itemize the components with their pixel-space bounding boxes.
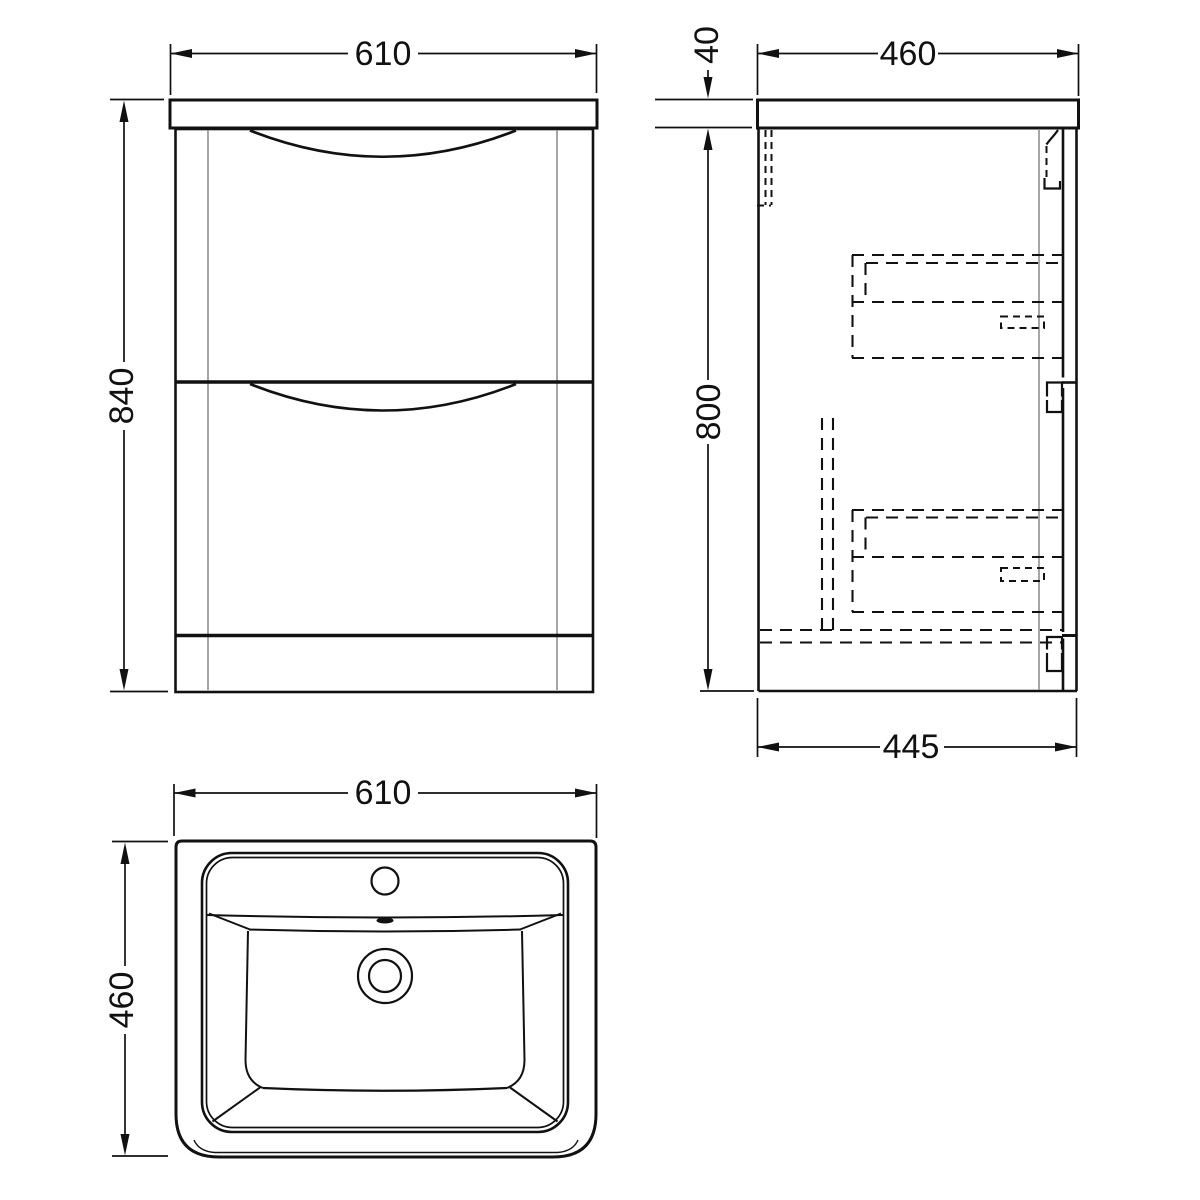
plan-overflow-slot (377, 918, 394, 924)
dim-side-worktop-thickness (655, 70, 753, 128)
dim-label-top-width: 610 (355, 776, 412, 810)
side-handle-recess-top (1045, 130, 1061, 189)
dim-label-top-depth: 460 (105, 972, 139, 1029)
dim-label-side-worktop-thickness: 40 (690, 26, 724, 64)
side-drawer1-runner (1001, 317, 1044, 329)
side-handle-bracket-middle (1047, 383, 1062, 413)
side-drawer1-hidden-box (852, 255, 1062, 358)
front-countertop (170, 100, 597, 128)
dim-label-side-top-depth: 460 (880, 37, 937, 71)
front-view (110, 44, 597, 692)
dim-label-front-height: 840 (105, 368, 139, 425)
side-drawer2-runner (1001, 568, 1044, 581)
side-countertop (758, 100, 1079, 128)
plan-worktop-outline (176, 841, 596, 1157)
dim-label-front-width: 610 (355, 37, 412, 71)
top-view (112, 784, 597, 1157)
front-drawer1-handle-arc (250, 131, 516, 157)
side-drawer2-hidden-box (852, 510, 1062, 612)
front-drawer2-handle-arc (250, 384, 516, 411)
technical-drawing-svg (0, 0, 1200, 1200)
side-bottom-panel-hidden (760, 630, 1062, 643)
blueprint-canvas: 610 840 40 460 800 445 610 460 (0, 0, 1200, 1200)
side-cabinet-back-and-bottom (759, 128, 1078, 691)
dim-label-side-cabinet-depth: 445 (883, 730, 940, 764)
side-waste-pipe-hidden (822, 418, 833, 630)
dim-label-side-cabinet-height: 800 (692, 384, 726, 441)
